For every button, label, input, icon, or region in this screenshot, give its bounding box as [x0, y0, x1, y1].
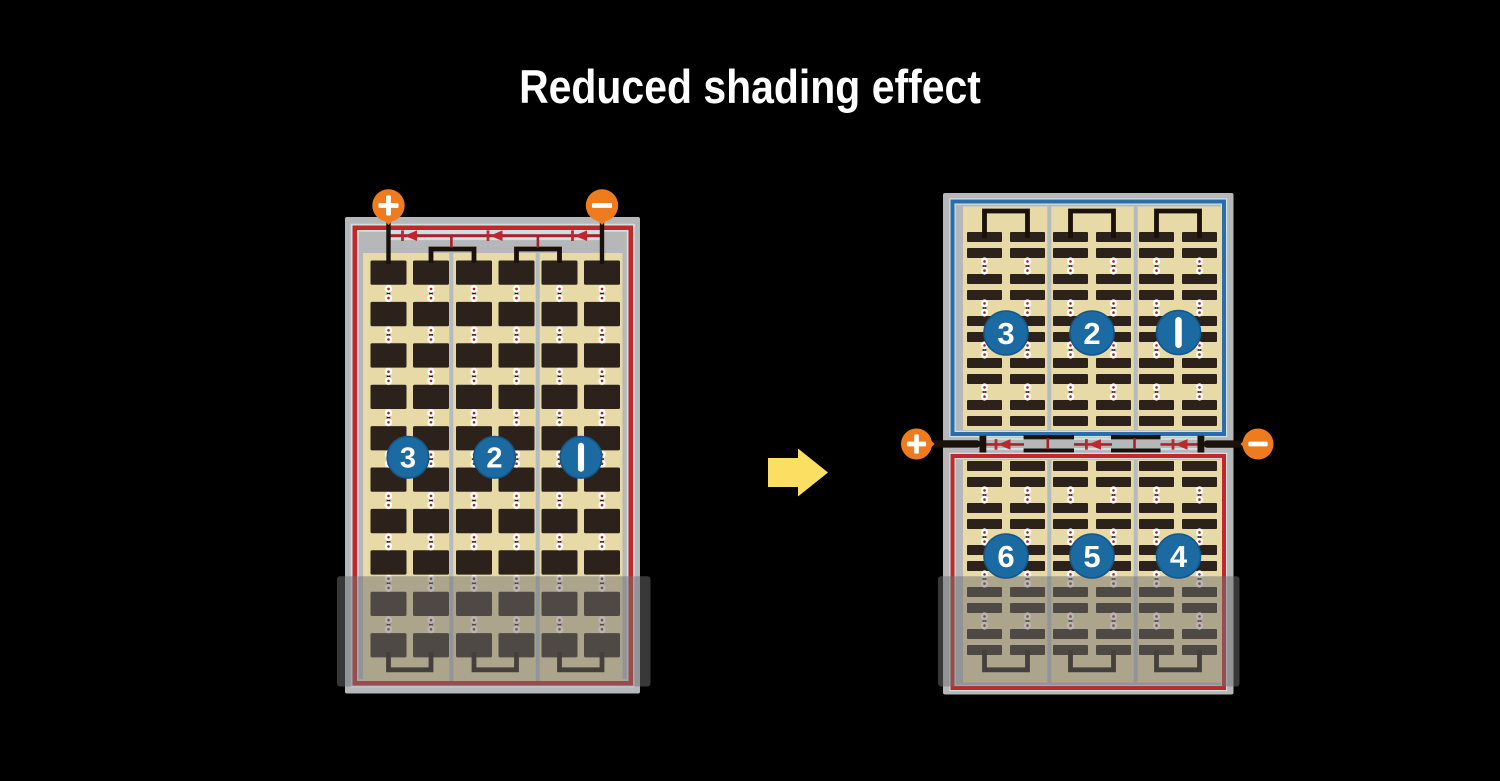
svg-text:3: 3 — [997, 316, 1014, 351]
svg-text:4: 4 — [1170, 539, 1188, 574]
svg-text:2: 2 — [486, 443, 502, 475]
svg-text:6: 6 — [997, 539, 1014, 574]
svg-text:5: 5 — [1083, 539, 1100, 574]
svg-text:2: 2 — [1083, 316, 1100, 351]
svg-text:3: 3 — [400, 443, 416, 475]
